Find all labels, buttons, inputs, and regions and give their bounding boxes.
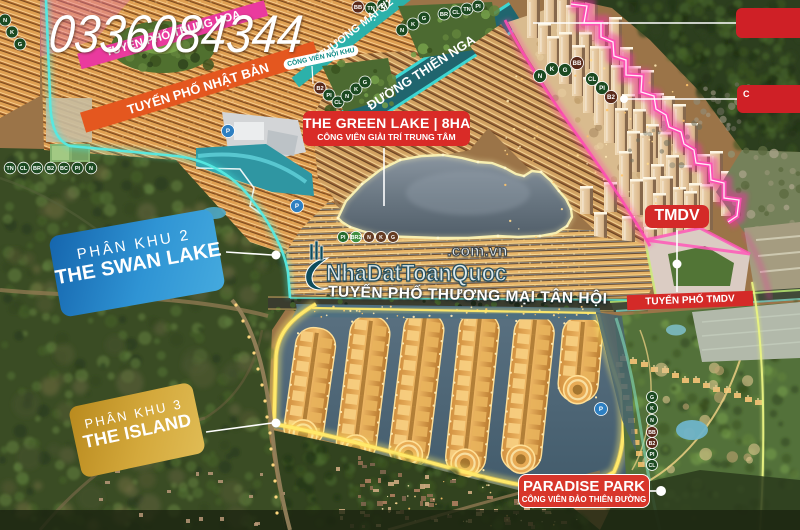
svg-text:BR2: BR2 [351, 235, 362, 241]
svg-text:PI: PI [75, 166, 81, 172]
svg-text:N: N [538, 73, 543, 80]
svg-text:K: K [379, 235, 383, 241]
svg-text:PI: PI [650, 452, 655, 458]
svg-text:P: P [295, 203, 299, 210]
svg-text:K: K [650, 406, 654, 412]
svg-text:CL: CL [649, 463, 657, 469]
svg-text:N: N [3, 18, 7, 24]
svg-text:G: G [422, 16, 427, 22]
svg-text:B2: B2 [316, 86, 323, 92]
svg-text:B2: B2 [607, 94, 615, 101]
svg-text:G: G [18, 42, 23, 48]
svg-text:PI: PI [326, 93, 332, 99]
svg-text:CL: CL [334, 100, 342, 106]
svg-text:N: N [650, 418, 654, 424]
svg-text:CL: CL [452, 10, 460, 16]
svg-text:G: G [563, 67, 568, 74]
svg-text:BR: BR [33, 166, 41, 172]
svg-text:N: N [367, 235, 371, 241]
svg-text:G: G [650, 395, 654, 401]
svg-text:P: P [226, 128, 230, 135]
svg-text:PI: PI [341, 235, 346, 241]
svg-text:PI: PI [599, 85, 605, 92]
svg-text:BB: BB [354, 5, 362, 11]
svg-text:G: G [363, 80, 368, 86]
svg-text:BR: BR [440, 12, 448, 18]
svg-text:TN: TN [463, 7, 471, 13]
svg-text:N: N [89, 166, 93, 172]
svg-text:B2: B2 [649, 441, 656, 447]
svg-text:B2: B2 [47, 166, 54, 172]
svg-text:BB: BB [648, 430, 656, 436]
svg-text:K: K [550, 66, 555, 73]
svg-text:G: G [391, 235, 395, 241]
svg-text:TN: TN [6, 166, 13, 172]
svg-text:BC: BC [60, 166, 68, 172]
svg-text:N: N [400, 28, 404, 34]
svg-text:P: P [599, 406, 603, 413]
svg-text:N: N [345, 94, 349, 100]
svg-text:BB: BB [573, 60, 582, 67]
svg-text:PI: PI [475, 4, 481, 10]
svg-text:CL: CL [588, 76, 596, 83]
svg-text:CL: CL [20, 166, 28, 172]
